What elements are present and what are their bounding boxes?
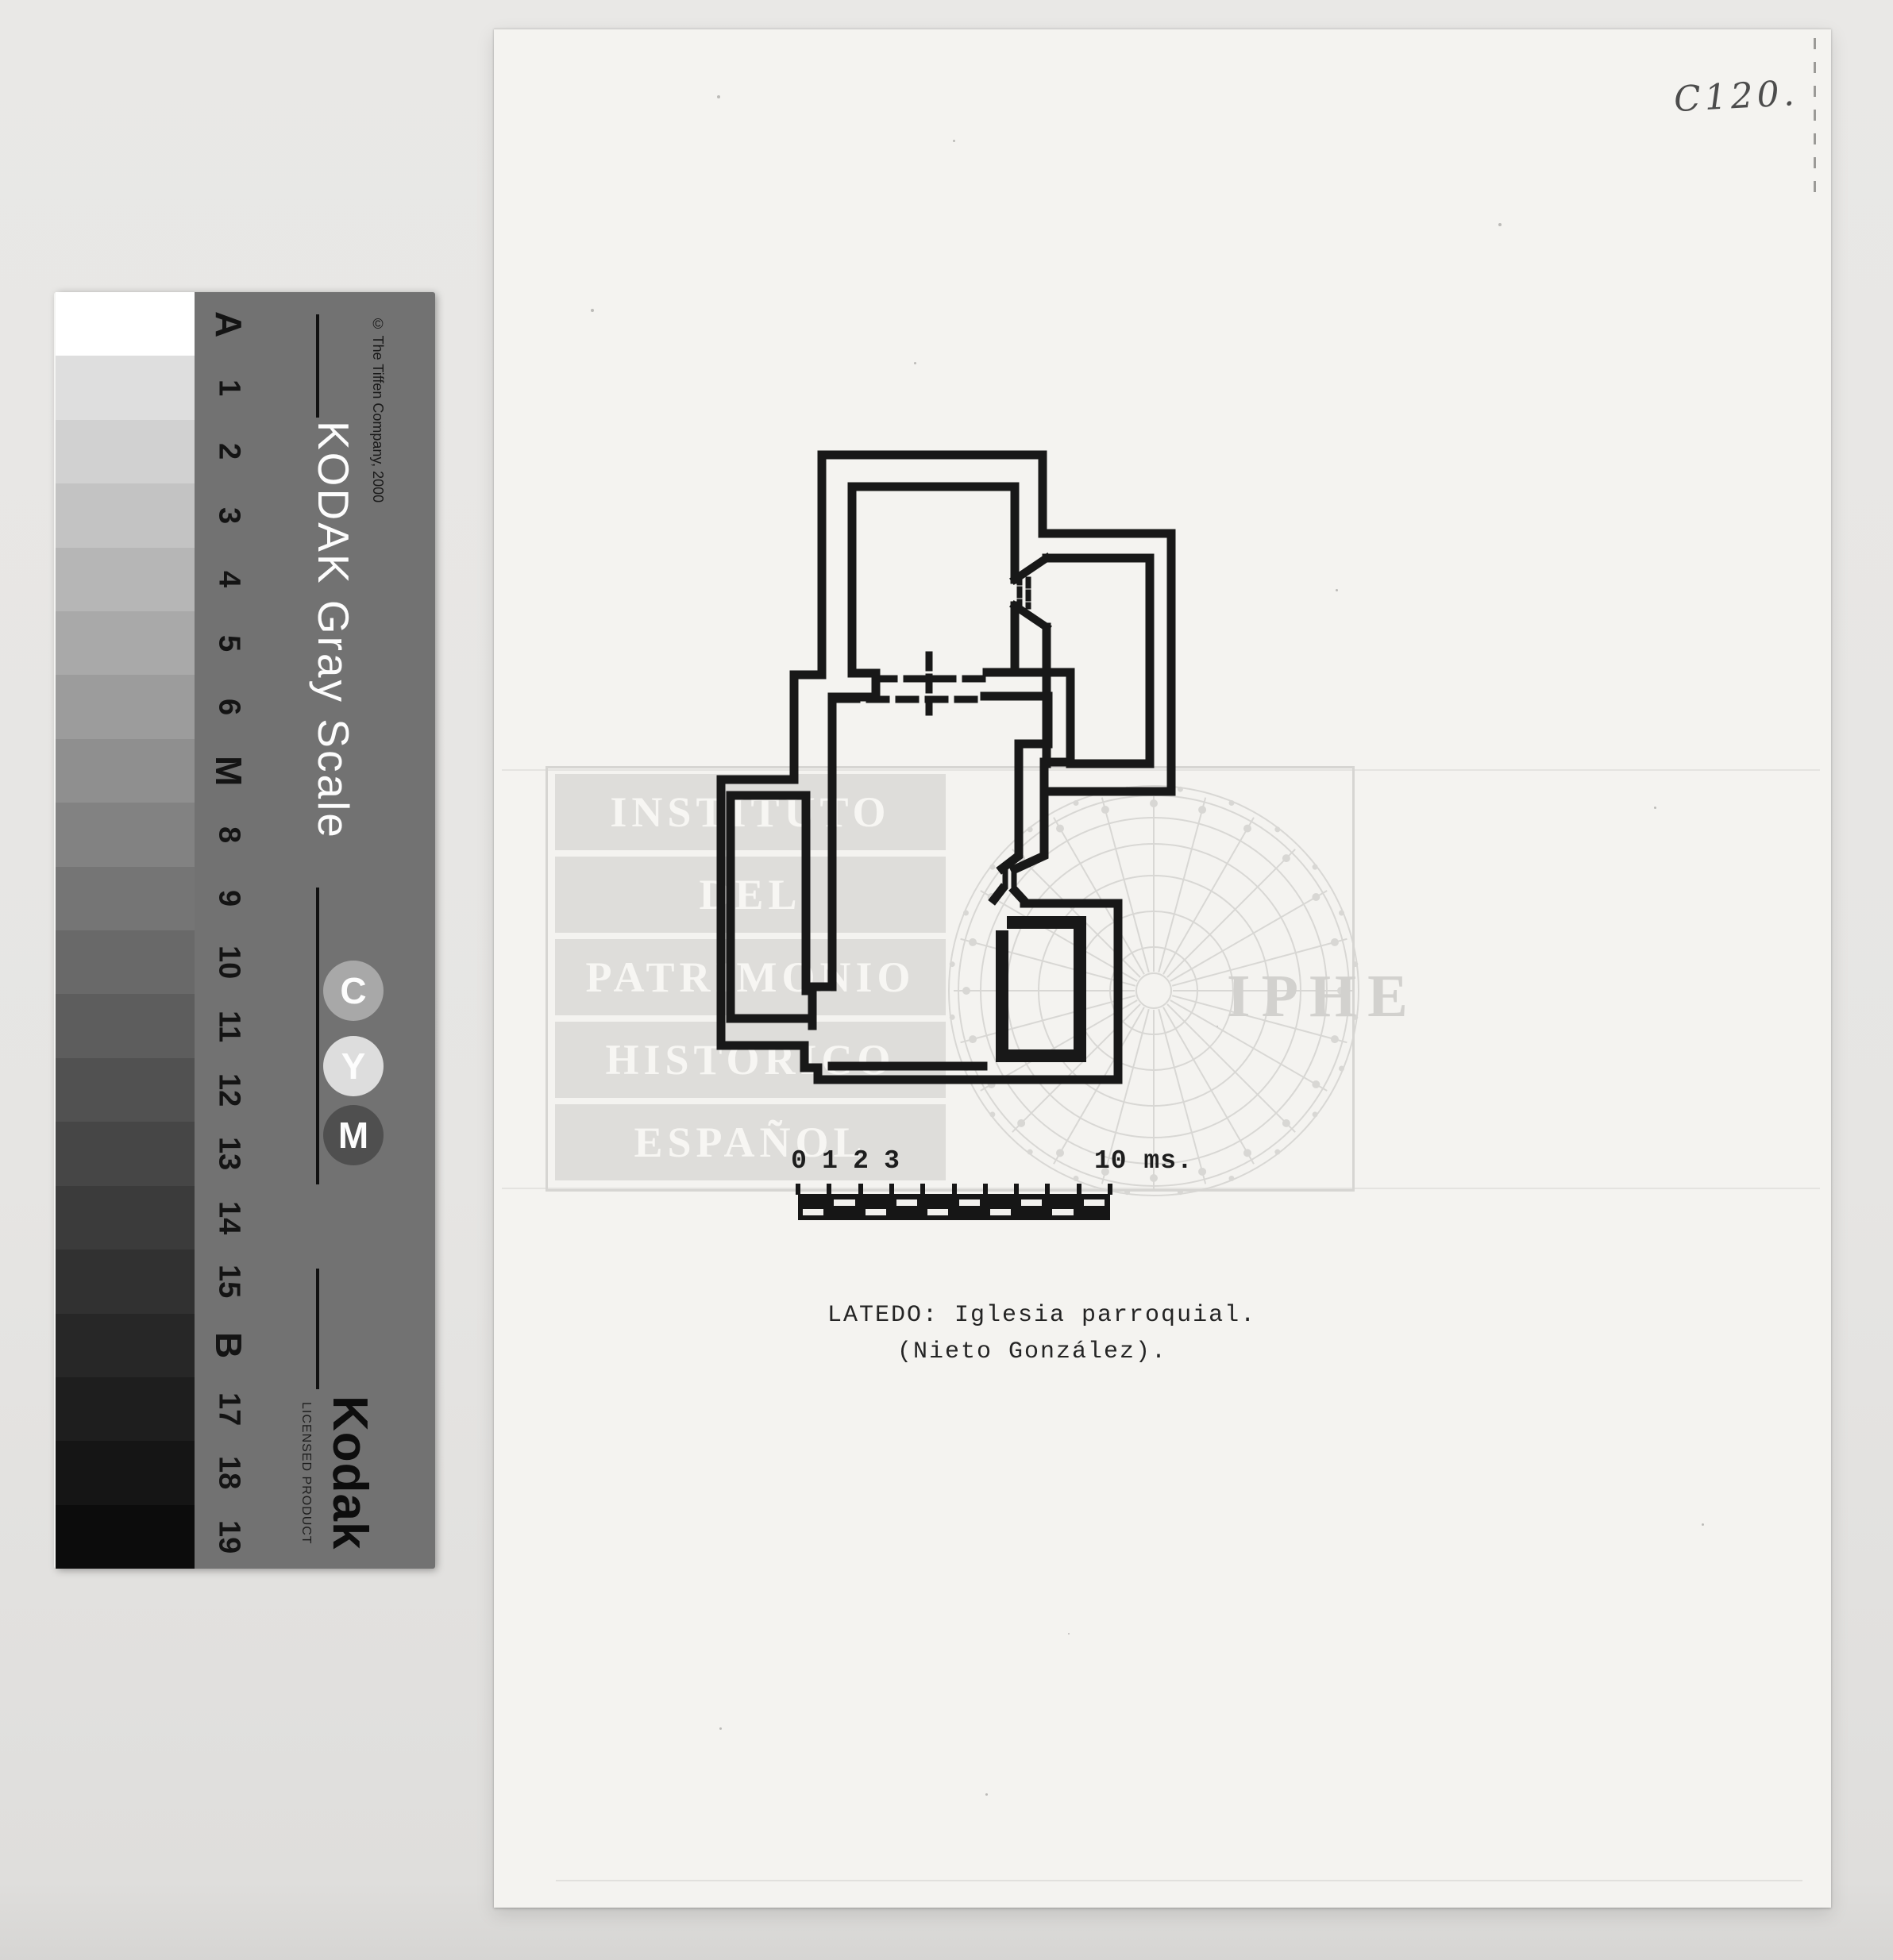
- cym-badge-y: Y: [323, 1036, 384, 1096]
- gray-step-label: 2: [206, 420, 251, 483]
- gray-patch: [56, 420, 195, 483]
- kodak-gray-scale-strip: A123456M89101112131415B171819 KODAK Gray…: [56, 292, 435, 1569]
- gray-step-label: 14: [206, 1186, 251, 1250]
- scale-bar-segment: [1084, 1199, 1105, 1206]
- gray-step-label: 12: [206, 1058, 251, 1122]
- licensed-product-text: LICENSED PRODUCT: [294, 1402, 313, 1561]
- scale-bar-tick: [952, 1184, 957, 1195]
- gray-patch: [56, 930, 195, 994]
- gray-step-label: 5: [206, 611, 251, 675]
- paper-speck: [1336, 589, 1338, 591]
- scan-artifact-line: [556, 1880, 1802, 1881]
- plan-wall: [994, 889, 1002, 899]
- scale-bar-segment: [1021, 1199, 1042, 1206]
- paper-edge-dash: [1814, 86, 1816, 97]
- gray-patch: [56, 1122, 195, 1185]
- scale-bar-segment: [834, 1199, 854, 1206]
- gray-patch: [56, 1058, 195, 1122]
- gray-scale-title: KODAK Gray Scale: [310, 421, 359, 897]
- cym-badge-c: C: [323, 961, 384, 1021]
- gray-step-label: 6: [206, 675, 251, 738]
- gray-step-label: B: [206, 1313, 251, 1377]
- kodak-logo: Kodak: [318, 1396, 378, 1558]
- scale-tick-label: 0: [783, 1146, 815, 1176]
- scale-bar-tick: [1108, 1184, 1112, 1195]
- gray-patch: [56, 1505, 195, 1569]
- gray-patch: [56, 548, 195, 611]
- scale-bar-tick: [1045, 1184, 1050, 1195]
- graphic-scale-bar: [798, 1184, 1124, 1223]
- cym-badge-m: M: [323, 1105, 384, 1165]
- paper-edge-dash: [1814, 62, 1816, 73]
- gray-step-label: 19: [206, 1505, 251, 1569]
- gray-step-label: 15: [206, 1250, 251, 1313]
- gray-patch: [56, 1441, 195, 1504]
- scale-bar-segment: [803, 1209, 823, 1215]
- gray-step-label: 11: [206, 994, 251, 1057]
- scale-bar-segment: [927, 1209, 948, 1215]
- scale-bar-segment: [990, 1209, 1011, 1215]
- gray-patch-column: [56, 292, 195, 1569]
- gray-step-label: M: [206, 739, 251, 803]
- scale-bar-tick: [796, 1184, 800, 1195]
- scale-bar: [798, 1194, 1110, 1220]
- gray-patch: [56, 1377, 195, 1441]
- copyright-text: © The Tiffen Company, 2000: [364, 316, 386, 522]
- paper-speck: [717, 95, 720, 98]
- gray-patch: [56, 867, 195, 930]
- scale-bar-segment: [1052, 1209, 1073, 1215]
- gray-step-label: A: [206, 292, 251, 356]
- gray-step-label: 17: [206, 1377, 251, 1441]
- paper-speck: [1068, 1633, 1070, 1635]
- caption-title: LATEDO: Iglesia parroquial.: [827, 1302, 1256, 1329]
- paper-speck: [985, 1793, 988, 1796]
- gray-patch: [56, 1250, 195, 1313]
- gray-step-label: 4: [206, 548, 251, 611]
- scale-bar-segment: [896, 1199, 917, 1206]
- paper-speck: [719, 1727, 722, 1730]
- scale-tick-label: 3: [876, 1146, 908, 1176]
- gray-patch: [56, 292, 195, 356]
- gray-patch: [56, 994, 195, 1057]
- gray-patch: [56, 803, 195, 866]
- plan-inner-wall: [812, 487, 1015, 1026]
- scale-bar-tick: [920, 1184, 925, 1195]
- gray-step-label: 3: [206, 483, 251, 547]
- gray-step-label: 1: [206, 356, 251, 419]
- gray-patch: [56, 1186, 195, 1250]
- gray-step-label: 18: [206, 1441, 251, 1504]
- gray-step-label: 13: [206, 1122, 251, 1185]
- gray-step-label: 9: [206, 867, 251, 930]
- divider-rule: [316, 1269, 319, 1389]
- watermark-acronym: IPHE: [1227, 962, 1419, 1031]
- gray-patch: [56, 675, 195, 738]
- paper-speck: [1702, 1523, 1704, 1526]
- gray-patch: [56, 611, 195, 675]
- scale-bar-tick: [1014, 1184, 1019, 1195]
- scale-bar-tick: [889, 1184, 894, 1195]
- archive-code-handwritten: C120.: [1673, 73, 1799, 120]
- scale-bar-segment: [866, 1209, 886, 1215]
- plan-porch-wall: [731, 795, 806, 1019]
- floor-plan-drawing: [699, 437, 1191, 1096]
- paper-speck: [1498, 223, 1502, 226]
- gray-patch: [56, 739, 195, 803]
- plan-chapel-wall: [1002, 922, 1080, 1056]
- paper-edge-dash: [1814, 38, 1816, 49]
- scanned-archive-image: C120. INSTITUTO DEL PATRIMONIO HISTORICO…: [0, 0, 1893, 1960]
- scale-bar-tick: [1077, 1184, 1081, 1195]
- paper-edge-dash: [1814, 181, 1816, 192]
- scale-end-label: 10 ms.: [1094, 1146, 1193, 1176]
- paper-speck: [914, 362, 916, 364]
- gray-patch: [56, 356, 195, 419]
- divider-rule: [316, 888, 319, 1184]
- scale-bar-tick: [858, 1184, 863, 1195]
- gray-step-label: 8: [206, 803, 251, 866]
- scale-tick-label: 2: [845, 1146, 877, 1176]
- gray-step-label: 10: [206, 930, 251, 994]
- paper-speck: [1654, 807, 1656, 809]
- gray-patch: [56, 483, 195, 547]
- paper-speck: [591, 309, 594, 312]
- paper-edge-dash: [1814, 110, 1816, 121]
- scale-tick-label: 1: [814, 1146, 846, 1176]
- gray-patch: [56, 1314, 195, 1377]
- paper-edge-dash: [1814, 133, 1816, 144]
- scale-bar-tick: [983, 1184, 988, 1195]
- scale-bar-tick: [827, 1184, 831, 1195]
- scale-bar-segment: [959, 1199, 980, 1206]
- plan-sacristy-wall: [1047, 558, 1150, 764]
- paper-speck: [953, 140, 955, 142]
- paper-edge-dash: [1814, 157, 1816, 168]
- divider-rule: [316, 314, 319, 418]
- caption-author: (Nieto González).: [897, 1338, 1167, 1365]
